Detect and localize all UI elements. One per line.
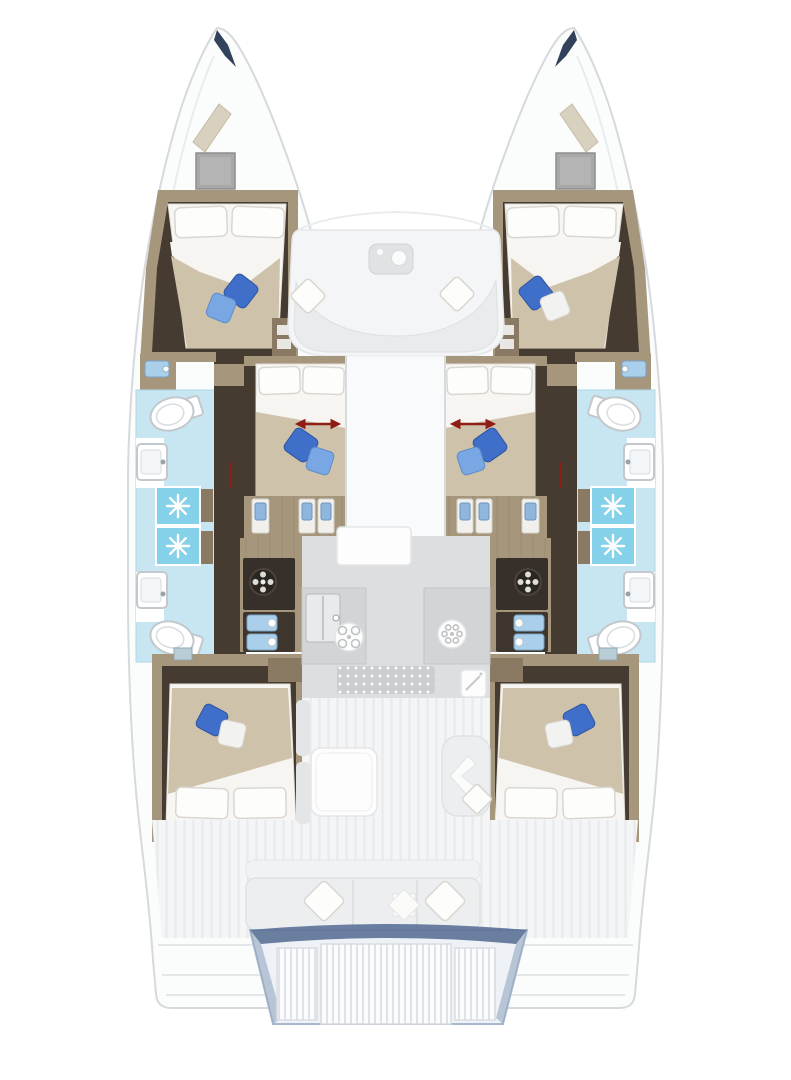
companionway-aisle [346, 356, 445, 538]
throw-pillow-icon [544, 719, 574, 749]
pillow-icon [231, 206, 284, 238]
washbasin-icon [137, 444, 167, 480]
galley-counter-starboard [424, 588, 490, 664]
shower-partition [201, 531, 213, 564]
skylight-glare [200, 157, 231, 185]
galley-counter-port [302, 588, 366, 664]
washbasin-icon [137, 572, 167, 608]
galley-sink-icon [247, 615, 277, 631]
bathroom-suite [136, 390, 216, 663]
shower-stall [156, 487, 200, 525]
pillow-icon [175, 787, 228, 819]
cooktop-burner-icon [335, 623, 363, 651]
fridge-icon [461, 670, 486, 697]
vanity [140, 354, 176, 390]
bed-icon [166, 684, 296, 826]
pillow-icon [174, 206, 227, 238]
corridor-step [214, 364, 246, 386]
drawer [277, 339, 291, 349]
swim-platform [250, 924, 527, 1024]
wardrobe-niche [252, 499, 269, 533]
wardrobe-icon [250, 496, 347, 538]
shower-partition [201, 489, 213, 522]
pillow-icon [234, 788, 287, 819]
salon [296, 698, 493, 824]
side-seat [296, 762, 310, 824]
cooktop-burner-icon [438, 620, 466, 648]
windshield-line [298, 212, 494, 230]
teak-slats [277, 944, 495, 1024]
shower-jet-icon [167, 495, 189, 517]
pillow-icon [259, 366, 301, 394]
star-cushion-icon [388, 889, 419, 920]
wardrobe-niche [299, 499, 315, 533]
bed-icon [168, 204, 286, 348]
dining-table-icon [311, 748, 377, 816]
galley-side-unit-starboard [489, 538, 551, 652]
coffee-table-icon [369, 244, 413, 274]
bench-backrest [246, 860, 480, 880]
shower-stall [156, 527, 200, 565]
extractor-fan-icon [250, 569, 276, 595]
faucet-icon [163, 366, 169, 372]
floor-grating [337, 666, 435, 694]
cabinet [268, 658, 302, 682]
wardrobe-niche [318, 499, 334, 533]
cabin-floor [244, 366, 256, 496]
galley-side-unit-port [240, 538, 302, 652]
door-marker [229, 462, 232, 488]
nav-seat [442, 736, 493, 816]
throw-pillow-icon [217, 719, 247, 749]
hull-window [174, 648, 192, 660]
shower-jet-icon [167, 535, 189, 557]
side-seat [296, 700, 310, 756]
floor-plan-svg [0, 0, 791, 1080]
pillow-icon [303, 366, 345, 394]
cabin-wall-line [345, 356, 347, 538]
aft-cockpit [246, 860, 480, 930]
catamaran-floor-plan [0, 0, 791, 1080]
galley-island [337, 527, 411, 565]
forward-cockpit [288, 212, 504, 356]
galley-sink-icon [247, 634, 277, 650]
galley [302, 527, 490, 727]
